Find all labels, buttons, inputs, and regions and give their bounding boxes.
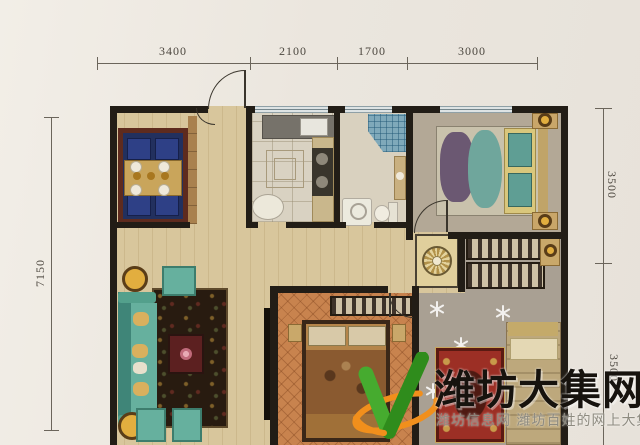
dining-chair [127, 194, 151, 216]
bedroom3-headboard [508, 322, 558, 336]
bedroom1-lamp [538, 214, 552, 228]
floorplan-photo: 3400 2100 1700 3000 7150 3500 3500 [0, 0, 640, 445]
dim-tick [97, 57, 98, 70]
wall-left [110, 106, 117, 445]
dining-chair [155, 194, 179, 216]
dim-label-2100: 2100 [263, 44, 323, 58]
bedroom1-pillow [508, 133, 532, 167]
wall-hall-bedroom3 [458, 232, 465, 292]
logo-v-left-stroke [366, 374, 388, 430]
dim-tick [537, 57, 538, 70]
dim-label-3400: 3400 [143, 44, 203, 58]
dim-tick [44, 117, 59, 118]
bedroom3-wardrobe [466, 262, 545, 289]
hall-medallion-rosette [422, 246, 452, 276]
side-table-round [122, 266, 148, 292]
wall-hall-bedroom2 [270, 286, 388, 293]
wall-bath-bottom [374, 222, 412, 228]
dim-top-line [97, 63, 537, 64]
dining-dish [133, 172, 141, 180]
window-kitchen [255, 106, 328, 113]
dim-tick [595, 263, 612, 264]
sofa-back [118, 292, 131, 426]
carpet-floral [494, 304, 512, 322]
dining-chair [155, 138, 179, 160]
dim-tick [44, 430, 59, 431]
dim-label-3500-upper: 3500 [605, 155, 619, 215]
sofa-pillow [133, 382, 149, 396]
wall-kitchen-bottom-a [246, 222, 258, 228]
watermark-title: 潍坊大集网 [434, 356, 640, 416]
weifang-daji-logo-icon [348, 352, 444, 445]
sofa-armrest [118, 292, 156, 303]
sofa-pillow [133, 312, 149, 326]
window-bathroom [345, 106, 392, 113]
kitchen-sink [300, 118, 328, 136]
dim-tick [595, 108, 612, 109]
bedroom1-bedding-teal [468, 130, 502, 208]
foyer-cabinet [188, 116, 197, 224]
wall-bath-bedroom1 [406, 106, 413, 240]
dim-label-7150: 7150 [33, 243, 47, 303]
carpet-floral [428, 300, 446, 318]
dim-tick [250, 57, 251, 70]
dining-dish [161, 172, 169, 180]
wall-kitchen-bottom-b [286, 222, 346, 228]
wall-kitchen-bath [334, 106, 340, 226]
window-bedroom1 [440, 106, 512, 113]
entrance-door-arc [208, 70, 245, 109]
vanity-basin [396, 172, 404, 180]
dim-label-3000: 3000 [442, 44, 502, 58]
toilet-bowl [374, 205, 390, 222]
kitchen-basin [252, 194, 284, 220]
dim-left-line [51, 117, 52, 430]
bedroom2-pillow [308, 326, 346, 346]
wall-living-bedroom2 [270, 286, 278, 445]
dining-plate [158, 184, 170, 196]
dining-plate [130, 184, 142, 196]
wall-top-left [110, 106, 208, 113]
kitchen-burner [316, 176, 328, 188]
sofa-pillow [132, 344, 148, 358]
wall-under-dining [110, 222, 190, 228]
ottoman [162, 266, 196, 296]
bedroom1-pillow [508, 173, 532, 207]
coffee-table-flower [180, 348, 192, 360]
bedroom1-lamp [538, 113, 552, 127]
bedroom2-nightstand [288, 324, 302, 342]
bedroom2-nightstand [392, 324, 406, 342]
dim-tick [337, 57, 338, 70]
bedroom1-headboard [538, 126, 548, 214]
watermark-tagline: 潍坊信息网 潍坊百姓的网上大集 [436, 410, 640, 430]
dim-label-1700: 1700 [342, 44, 402, 58]
bedroom2-pillow [348, 326, 386, 346]
ottoman [136, 408, 166, 442]
sofa-pillow [133, 362, 147, 374]
dim-tick [407, 57, 408, 70]
kitchen-burner [316, 153, 328, 165]
kitchen-tile-motif [274, 158, 296, 180]
dining-chair [127, 138, 151, 160]
wall-dining-kitchen [246, 106, 252, 226]
washer-drum [350, 203, 367, 220]
bedroom3-lamp [544, 244, 557, 257]
ottoman [172, 408, 202, 442]
dining-dish [147, 172, 155, 180]
